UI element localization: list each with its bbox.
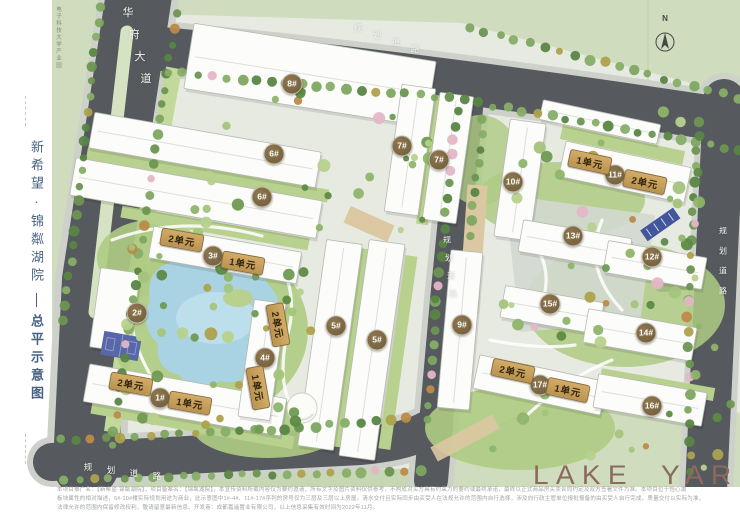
masterplan-page: { "sidebar": { "project_name": "新希望·锦粼湖院… (0, 0, 740, 525)
project-name: 新希望·锦粼湖院 (29, 140, 44, 286)
sidebar-title-block: 新希望·锦粼湖院总平示意图 (6, 96, 46, 476)
site-plan-canvas (0, 0, 740, 487)
disclaimer-line: 本项目推广名：【新希望·锦粼湖院】，项目备案名：【锦粼湖院】，本宣传资料所载内容… (57, 486, 712, 495)
sidebar-dash-top (25, 96, 26, 126)
disclaimer-line: 法律允许的范围内保留修改权利，敬请留意最新信息。开发商：成都嘉遥置业有限公司，以… (57, 504, 712, 513)
disclaimer-text: 本项目推广名：【新希望·锦粼湖院】，项目备案名：【锦粼湖院】，本宣传资料所载内容… (57, 486, 712, 513)
sidebar-divider (36, 293, 37, 307)
disclaimer-line: 板块属性的相对描述，6#-10#楼实际规划用途为商业，此示意图中1#-4#、11… (57, 495, 712, 504)
drawing-title: 总平示意图 (29, 314, 44, 404)
sidebar-dash-bottom (25, 434, 26, 464)
